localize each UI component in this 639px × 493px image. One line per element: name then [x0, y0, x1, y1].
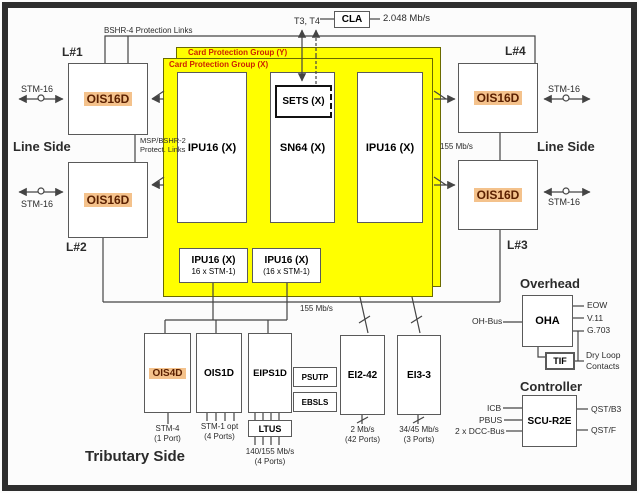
stm16-label-left-top: STM-16	[21, 84, 53, 94]
ois1d-ports-label: STM-1 opt (4 Ports)	[192, 422, 247, 441]
dcc-bus-label: 2 x DCC-Bus	[455, 426, 505, 436]
v11-label: V.11	[587, 313, 603, 323]
oh-bus-label: OH-Bus	[472, 316, 502, 326]
line-side-left-heading: Line Side	[13, 139, 71, 154]
card-fan-links	[152, 91, 455, 185]
ei3-3-ports-label: 34/45 Mb/s (3 Ports)	[390, 425, 448, 444]
stm16-arrow-left-bottom	[19, 188, 63, 194]
ois4d-rate: STM-4	[156, 424, 180, 433]
msp-label: MSP/BSHR-2 Protect. Links	[140, 137, 186, 154]
bshr4-label: BSHR-4 Protection Links	[104, 26, 192, 35]
l1-label: L#1	[62, 45, 83, 59]
pbus-label: PBUS	[479, 415, 502, 425]
ltus-ports-label: 140/155 Mb/s (4 Ports)	[237, 447, 303, 466]
ei2-42-ports-label: 2 Mb/s (42 Ports)	[335, 425, 390, 444]
block-diagram: Card Protection Group (Y) Card Protectio…	[0, 0, 639, 493]
dry-loop-line2: Contacts	[586, 361, 620, 371]
controller-heading: Controller	[520, 379, 582, 394]
rate-155-right-label: 155 Mb/s	[440, 142, 473, 151]
ei3-3-ports: (3 Ports)	[404, 435, 435, 444]
ltus-rate: 140/155 Mb/s	[246, 447, 294, 456]
ois4d-ports: (1 Port)	[154, 434, 181, 443]
ei2-42-rate: 2 Mb/s	[350, 425, 374, 434]
ois1d-ports: (4 Ports)	[204, 432, 235, 441]
qst-f-label: QST/F	[591, 425, 616, 435]
msp-label-line2: Protect. Links	[140, 145, 185, 154]
qst-b3-label: QST/B3	[591, 404, 621, 414]
l4-label: L#4	[505, 44, 526, 58]
stm16-arrow-left-top	[19, 95, 63, 101]
dry-loop-label: Dry Loop Contacts	[586, 350, 621, 372]
rate-155-bus-label: 155 Mb/s	[300, 304, 333, 313]
line-side-right-heading: Line Side	[537, 139, 595, 154]
dry-loop-line1: Dry Loop	[586, 350, 621, 360]
connector-lines	[0, 0, 639, 493]
bus-lines	[103, 230, 500, 333]
ei2-42-ports: (42 Ports)	[345, 435, 380, 444]
icb-label: ICB	[487, 403, 501, 413]
l2-label: L#2	[66, 240, 87, 254]
g703-label: G.703	[587, 325, 610, 335]
cla-rate-label: 2.048 Mb/s	[383, 13, 430, 24]
overhead-heading: Overhead	[520, 276, 580, 291]
ltus-ports: (4 Ports)	[255, 457, 286, 466]
stm16-label-right-bottom: STM-16	[548, 197, 580, 207]
l3-label: L#3	[507, 238, 528, 252]
overhead-link-lines	[503, 306, 584, 361]
stm16-label-left-bottom: STM-16	[21, 199, 53, 209]
ei3-3-rate: 34/45 Mb/s	[399, 425, 439, 434]
t3-t4-label: T3, T4	[294, 16, 320, 26]
stm16-arrow-right-bottom	[544, 188, 590, 194]
eow-label: EOW	[587, 300, 607, 310]
stm16-arrow-right-top	[544, 95, 590, 101]
controller-link-lines	[503, 408, 588, 431]
ois1d-rate: STM-1 opt	[201, 422, 238, 431]
stm16-label-right-top: STM-16	[548, 84, 580, 94]
ois4d-ports-label: STM-4 (1 Port)	[140, 424, 195, 443]
tributary-side-heading: Tributary Side	[85, 448, 185, 465]
bshr4-protection-link-line	[105, 36, 535, 63]
